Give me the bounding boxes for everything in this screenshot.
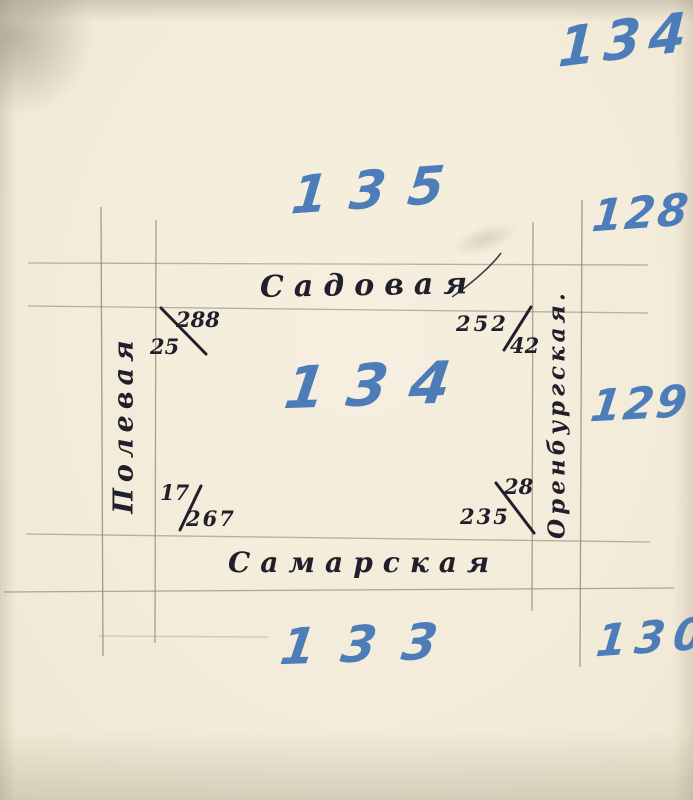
corner-mark-top-left: 288 25 — [150, 307, 230, 365]
corner-mark-bottom-right: 28 235 — [460, 474, 550, 536]
block-number-north: 135 — [289, 154, 469, 227]
corner-mark-upper-value: 288 — [176, 307, 220, 332]
corner-mark-lower-value: 235 — [460, 504, 510, 529]
street-name-west: Полевая — [109, 334, 140, 513]
block-number-outer-top-right: 134 — [557, 0, 693, 80]
block-number-center: 134 — [280, 347, 477, 422]
corner-mark-bottom-left: 17 267 — [158, 480, 248, 540]
corner-mark-upper-value: 17 — [160, 480, 189, 505]
block-number-east-upper: 128 — [590, 184, 693, 242]
street-name-north: Садовая — [260, 266, 478, 305]
corner-mark-lower-value: 42 — [510, 333, 539, 358]
block-number-south: 133 — [277, 612, 467, 677]
corner-mark-upper-value: 252 — [456, 311, 509, 336]
corner-mark-lower-value: 267 — [186, 506, 236, 531]
block-number-east-lower: 130 — [594, 608, 693, 668]
street-name-south: Самарская — [228, 546, 499, 579]
corner-mark-top-right: 252 42 — [456, 311, 546, 369]
corner-mark-lower-value: 25 — [150, 334, 179, 359]
corner-mark-upper-value: 28 — [504, 474, 533, 499]
pencil-smudge — [448, 216, 523, 262]
block-number-east-middle: 129 — [588, 376, 692, 433]
scanned-plan-sheet: 134 135 128 134 129 133 130 Садовая Сама… — [0, 0, 693, 800]
